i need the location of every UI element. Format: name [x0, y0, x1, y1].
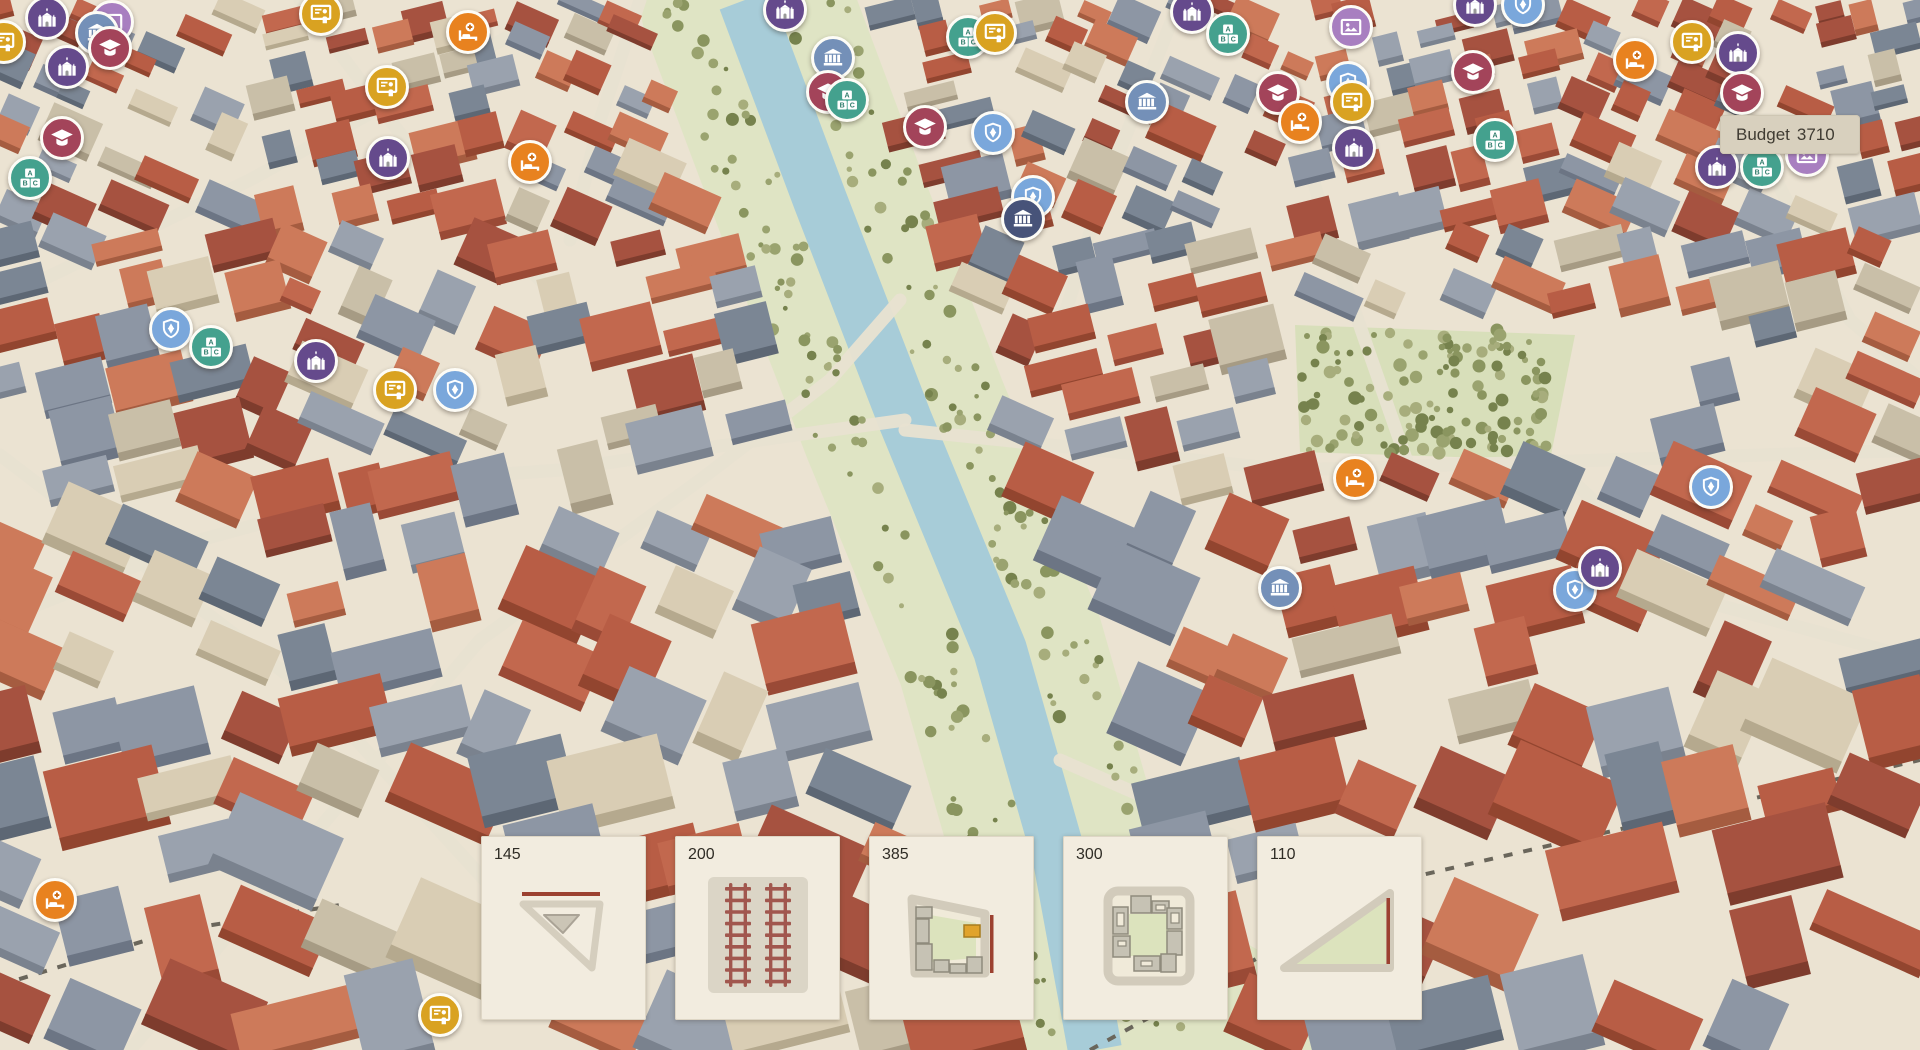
graduation-cap-icon — [912, 114, 938, 140]
tile-card-corner-road[interactable]: 145 — [481, 836, 646, 1020]
tile-price: 300 — [1076, 846, 1103, 864]
map-marker-police[interactable] — [149, 307, 193, 351]
abc-blocks-icon: ABC — [1482, 127, 1508, 153]
tile-card-park-triangle[interactable]: 110 — [1257, 836, 1422, 1020]
map-marker-bank[interactable] — [1125, 80, 1169, 124]
graduation-cap-icon — [1729, 80, 1755, 106]
map-marker-hospital[interactable] — [1333, 456, 1377, 500]
map-marker-church[interactable] — [294, 339, 338, 383]
map-marker-police[interactable] — [433, 368, 477, 412]
graduation-cap-icon — [1265, 80, 1291, 106]
shield-star-icon — [158, 316, 184, 342]
map-marker-education[interactable] — [88, 26, 132, 70]
church-towers-icon — [1462, 0, 1488, 18]
shield-star-icon — [1698, 474, 1724, 500]
map-marker-school[interactable]: ABC — [825, 78, 869, 122]
tile-price: 110 — [1270, 846, 1296, 864]
map-marker-hospital[interactable] — [508, 140, 552, 184]
map-marker-teacher[interactable] — [973, 11, 1017, 55]
hospital-bed-icon — [1622, 47, 1648, 73]
bank-columns-icon — [820, 45, 846, 71]
svg-text:A: A — [1225, 27, 1230, 34]
shield-star-icon — [442, 377, 468, 403]
hospital-bed-icon — [42, 887, 68, 913]
hospital-bed-icon — [1287, 109, 1313, 135]
map-marker-church[interactable] — [1332, 126, 1376, 170]
church-towers-icon — [303, 348, 329, 374]
map-marker-education[interactable] — [1720, 71, 1764, 115]
map-marker-education[interactable] — [40, 116, 84, 160]
church-towers-icon — [1725, 40, 1751, 66]
hospital-bed-icon — [455, 19, 481, 45]
map-marker-teacher[interactable] — [1670, 20, 1714, 64]
map-marker-bank[interactable] — [1258, 566, 1302, 610]
map-marker-school[interactable]: ABC — [1206, 12, 1250, 56]
map-marker-teacher[interactable] — [373, 368, 417, 412]
graduation-cap-icon — [1460, 59, 1486, 85]
svg-text:A: A — [208, 340, 213, 347]
svg-text:A: A — [1492, 133, 1497, 140]
church-towers-icon — [772, 0, 798, 23]
svg-text:A: A — [965, 30, 970, 37]
map-marker-museum[interactable] — [1329, 5, 1373, 49]
city-block-tile-icon — [882, 865, 1022, 1005]
bank-columns-icon — [1267, 575, 1293, 601]
tile-card-courtyard-block[interactable]: 300 — [1063, 836, 1228, 1020]
svg-text:C: C — [1765, 170, 1770, 177]
map-marker-police[interactable] — [971, 111, 1015, 155]
map-marker-school[interactable]: ABC — [189, 325, 233, 369]
teacher-board-icon — [0, 29, 17, 55]
teacher-board-icon — [1339, 89, 1365, 115]
svg-text:C: C — [1231, 37, 1236, 44]
abc-blocks-icon: ABC — [834, 87, 860, 113]
svg-text:B: B — [204, 350, 209, 357]
svg-text:B: B — [1488, 143, 1493, 150]
railway-tracks-tile-icon — [688, 865, 828, 1005]
teacher-board-icon — [982, 20, 1008, 46]
bank-columns-icon — [1134, 89, 1160, 115]
graduation-cap-icon — [97, 35, 123, 61]
svg-text:C: C — [33, 181, 38, 188]
svg-text:B: B — [840, 103, 845, 110]
map-marker-teacher[interactable] — [1330, 80, 1374, 124]
church-towers-icon — [1704, 154, 1730, 180]
shield-star-icon — [1510, 0, 1536, 18]
map-marker-church[interactable] — [45, 45, 89, 89]
map-marker-police[interactable] — [1689, 465, 1733, 509]
tile-price: 385 — [882, 846, 909, 864]
map-marker-church[interactable] — [1578, 546, 1622, 590]
map-marker-hospital[interactable] — [1613, 38, 1657, 82]
abc-blocks-icon: ABC — [1215, 21, 1241, 47]
map-marker-church[interactable] — [366, 136, 410, 180]
svg-text:C: C — [214, 350, 219, 357]
svg-text:B: B — [961, 40, 966, 47]
abc-blocks-icon: ABC — [198, 334, 224, 360]
teacher-board-icon — [427, 1002, 453, 1028]
church-towers-icon — [34, 5, 60, 31]
map-marker-school[interactable]: ABC — [8, 156, 52, 200]
map-marker-hospital[interactable] — [1278, 100, 1322, 144]
svg-text:B: B — [1221, 37, 1226, 44]
svg-text:A: A — [1759, 160, 1764, 167]
church-towers-icon — [54, 54, 80, 80]
map-marker-education[interactable] — [903, 105, 947, 149]
svg-text:C: C — [1498, 143, 1503, 150]
courtyard-block-tile-icon — [1076, 865, 1216, 1005]
map-marker-teacher[interactable] — [418, 993, 462, 1037]
map-marker-bank_dark[interactable] — [1001, 197, 1045, 241]
budget-value: 3710 — [1797, 125, 1835, 145]
svg-text:A: A — [27, 171, 32, 178]
map-marker-hospital[interactable] — [446, 10, 490, 54]
corner-road-triangle-tile-icon — [494, 865, 634, 1005]
svg-text:B: B — [1755, 170, 1760, 177]
tile-price: 200 — [688, 846, 715, 864]
svg-text:C: C — [850, 103, 855, 110]
abc-blocks-icon: ABC — [17, 165, 43, 191]
tile-card-block-landmark[interactable]: 385 — [869, 836, 1034, 1020]
park-triangle-tile-icon — [1270, 865, 1410, 1005]
tile-price: 145 — [494, 846, 521, 864]
hospital-bed-icon — [1342, 465, 1368, 491]
map-marker-teacher[interactable] — [365, 65, 409, 109]
bank-columns-icon — [1010, 206, 1036, 232]
svg-text:B: B — [23, 181, 28, 188]
picture-frame-icon — [1338, 14, 1364, 40]
graduation-cap-icon — [49, 125, 75, 151]
shield-star-icon — [980, 120, 1006, 146]
church-towers-icon — [1587, 555, 1613, 581]
abc-blocks-icon: ABC — [1749, 154, 1775, 180]
budget-label: Budget — [1736, 125, 1790, 145]
church-towers-icon — [375, 145, 401, 171]
build-toolbar: 145 200 — [481, 836, 1422, 1020]
hospital-bed-icon — [517, 149, 543, 175]
map-marker-education[interactable] — [1451, 50, 1495, 94]
map-marker-church[interactable] — [1716, 31, 1760, 75]
map-marker-school[interactable]: ABC — [1473, 118, 1517, 162]
budget-display: Budget 3710 — [1720, 115, 1860, 154]
teacher-board-icon — [374, 74, 400, 100]
svg-text:A: A — [844, 93, 849, 100]
teacher-board-icon — [1679, 29, 1705, 55]
game-viewport[interactable]: ABCABCABCABCABCABCABC Budget 3710 145 20… — [0, 0, 1920, 1050]
teacher-board-icon — [382, 377, 408, 403]
church-towers-icon — [1341, 135, 1367, 161]
map-marker-hospital[interactable] — [33, 878, 77, 922]
tile-card-railway[interactable]: 200 — [675, 836, 840, 1020]
church-towers-icon — [1179, 0, 1205, 25]
teacher-board-icon — [308, 1, 334, 27]
